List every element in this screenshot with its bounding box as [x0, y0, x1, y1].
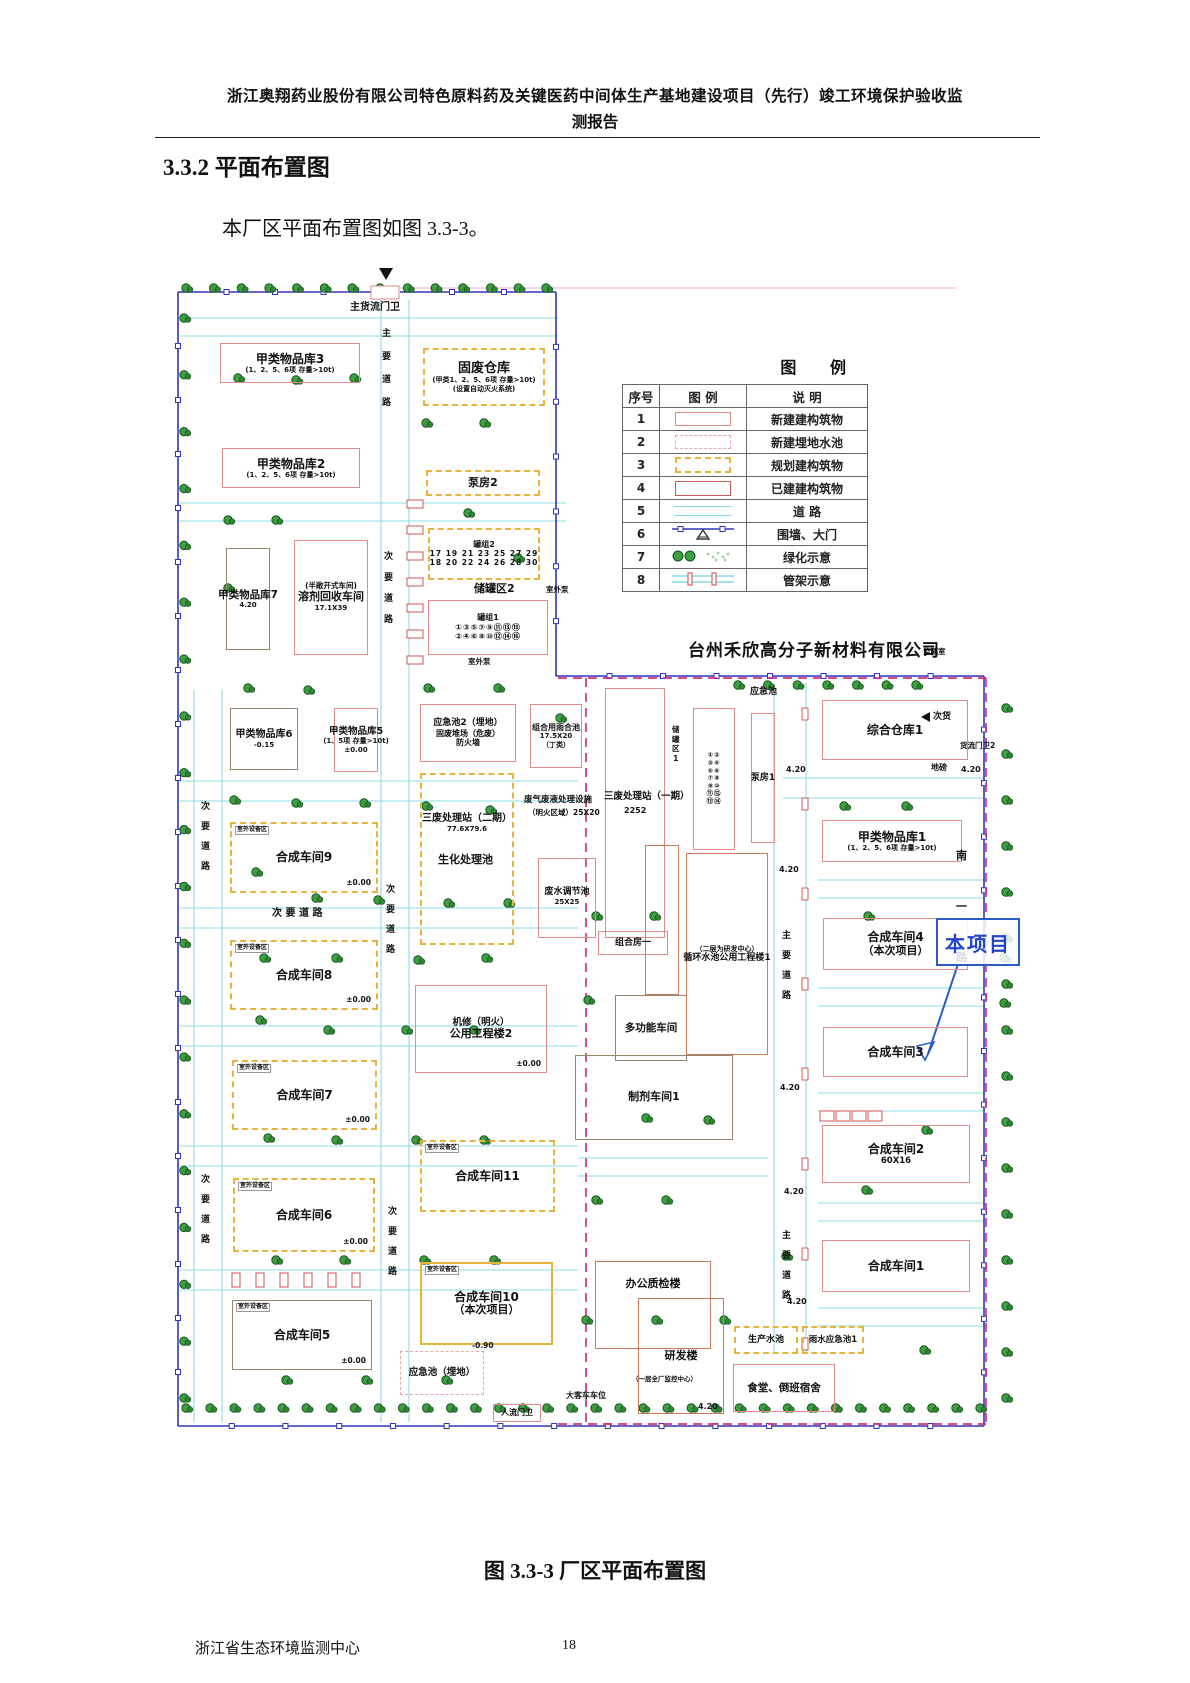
road-label-次要道路: 次 要 道 路	[272, 908, 322, 919]
building-label: 合成车间9	[276, 850, 332, 864]
plan-label-大客车车位: 大客车车位	[566, 1392, 606, 1401]
plan-building-固废仓库: 固废仓库(甲类1、2、5、6项 存量>10t)(设置自动灭火系统)	[423, 348, 545, 406]
tank-number-row: ⑬⑭	[707, 798, 722, 806]
building-sublabel: 17.5X20	[540, 732, 572, 740]
building-label: 人流门卫	[501, 1408, 533, 1417]
legend-row: 6 围墙、大门	[623, 523, 868, 546]
footer-organization: 浙江省生态环境监测中心	[195, 1637, 360, 1658]
road-label-次要道路: 次要道路	[388, 1208, 397, 1277]
tank-number-row: ②④⑥⑧⑩⑫⑭⑯	[455, 632, 521, 641]
tank-number-row: ①③⑤⑦⑨⑪⑬⑮	[455, 623, 521, 632]
plan-building-人流门卫: 人流门卫	[493, 1404, 541, 1422]
building-label: 制剂车间1	[628, 1091, 680, 1104]
road-label-次要道路: 次要道路	[386, 886, 395, 955]
legend-no: 4	[623, 477, 660, 500]
plan-label-4.20: 4.20	[961, 766, 981, 775]
report-header-line1: 浙江奥翔药业股份有限公司特色原料药及关键医药中间体生产基地建设项目（先行）竣工环…	[150, 84, 1040, 106]
plan-building-甲类物品库7: 甲类物品库74.20	[226, 548, 270, 650]
legend-header-row: 序号图 例说 明	[623, 385, 868, 408]
building-label: 甲类物品库7	[218, 589, 278, 601]
plan-label-储罐区1: 储罐区1	[672, 726, 680, 762]
road-icon	[660, 500, 747, 523]
plan-label-（一层全厂监控中心）: （一层全厂监控中心）	[632, 1376, 697, 1383]
legend-title: 图 例	[622, 354, 870, 378]
legend-no: 6	[623, 523, 660, 546]
plan-label-次货: 次货	[933, 713, 951, 723]
building-label: 办公质检楼	[626, 1278, 681, 1291]
plan-building-合成车间11: 室外设备区合成车间11	[420, 1140, 555, 1212]
legend-no: 3	[623, 454, 660, 477]
building-sublabel: （丁类）	[542, 741, 570, 749]
new-buried-pool-icon	[660, 431, 747, 454]
road-label-主要道路: 主要道路	[782, 932, 791, 1001]
building-sublabel: （本次项目）	[863, 945, 929, 958]
building-label: 食堂、倒班宿舍	[747, 1382, 821, 1394]
plan-building-合成车间7: 室外设备区合成车间7±0.00	[232, 1060, 377, 1130]
plan-building-泵房2: 泵房2	[426, 470, 540, 496]
building-label: 应急池2（埋地）	[433, 718, 502, 729]
elevation-label: ±0.00	[341, 1357, 366, 1366]
page-number: 18	[562, 1638, 576, 1654]
building-label: 循环水池公用工程楼1	[683, 953, 770, 964]
legend-no: 5	[623, 500, 660, 523]
building-label: 三废处理站（二期）	[422, 813, 512, 825]
plan-label--0.90: -0.90	[472, 1342, 494, 1350]
plan-building-合成车间2: 合成车间260X16	[822, 1125, 970, 1183]
building-label: 合成车间1	[868, 1259, 924, 1273]
building-label: 甲类物品库6	[236, 729, 293, 741]
building-sublabel: 固废堆场（危废）	[436, 729, 500, 738]
building-label: 合成车间2	[868, 1142, 924, 1156]
building-sublabel: 60X16	[881, 1156, 911, 1166]
plan-label-（明火区域）25X20: （明火区域）25X20	[528, 809, 600, 817]
outdoor-equipment-area-label: 室外设备区	[235, 944, 269, 953]
legend-desc: 管架示意	[747, 569, 868, 592]
building-label: 生产水池	[748, 1335, 784, 1346]
plan-label-室外泵: 室外泵	[546, 586, 569, 594]
plan-label-4.20: 4.20	[698, 1403, 718, 1412]
section-heading: 3.3.2 平面布置图	[163, 148, 330, 182]
legend-desc: 绿化示意	[747, 546, 868, 569]
legend-desc: 规划建构筑物	[747, 454, 868, 477]
site-plan: 图 例 序号图 例说 明 1 新建建构筑物 2 新建埋地水池 3 规划建构筑物 …	[168, 258, 1018, 1443]
building-sublabel: (1、2、5、6项 存量>10t)	[246, 471, 335, 479]
plan-building-甲类物品库2: 甲类物品库2(1、2、5、6项 存量>10t)	[222, 448, 360, 488]
building-label: 合成车间8	[276, 968, 332, 982]
plan-building-循环水池公用工程楼1: （二层为研发中心）循环水池公用工程楼1	[686, 853, 768, 1055]
building-sublabel: 25X25	[555, 898, 580, 906]
legend-desc: 新建埋地水池	[747, 431, 868, 454]
plan-label-监测室: 监测室	[923, 648, 946, 656]
plan-building	[645, 845, 679, 995]
new-building-icon	[660, 408, 747, 431]
building-label: 合成车间4	[867, 930, 923, 944]
plan-building-应急池2（埋地）: 应急池2（埋地）固废堆场（危废）防火墙	[420, 704, 516, 762]
building-label: 废水调节池	[544, 887, 589, 898]
legend-row: 5 道 路	[623, 500, 868, 523]
plan-building-合成车间10: 室外设备区合成车间10（本次项目）	[420, 1262, 553, 1345]
elevation-label: ±0.00	[516, 1060, 541, 1069]
plan-building-雨水应急池1: 雨水应急池1	[802, 1326, 864, 1354]
plan-building-公用工程楼2: 机修（明火）公用工程楼2±0.00	[415, 985, 547, 1073]
building-label: 合成车间3	[867, 1045, 923, 1059]
plan-label-主货流门卫: 主货流门卫	[350, 302, 400, 313]
outdoor-equipment-area-label: 室外设备区	[236, 1303, 270, 1312]
road-label-主要道路: 主要道路	[782, 1232, 791, 1301]
building-sublabel: （二层为研发中心）	[696, 945, 759, 953]
building-sublabel: -0.15	[254, 741, 274, 749]
plan-building-合成车间9: 室外设备区合成车间9±0.00	[230, 822, 378, 893]
building-label: 公用工程楼2	[450, 1028, 513, 1041]
plan-building-应急池（埋地）: 应急池（埋地）	[400, 1351, 484, 1395]
elevation-label: ±0.00	[346, 879, 371, 888]
legend-row: 1 新建建构筑物	[623, 408, 868, 431]
building-sublabel: (甲类1、2、5、6项 存量>10t)	[432, 376, 535, 384]
building-label: 固废仓库	[458, 361, 510, 376]
project-callout: 本项目	[936, 918, 1020, 966]
plan-building-溶剂回收车间: (半敞开式车间)溶剂回收车间17.1X39	[294, 540, 368, 655]
greenery-icon	[670, 548, 736, 564]
legend-desc: 围墙、大门	[747, 523, 868, 546]
building-sublabel: 4.20	[239, 601, 256, 609]
building-label: 泵房2	[468, 477, 498, 490]
building-label: 合成车间11	[455, 1169, 520, 1183]
building-label: 合成车间7	[276, 1088, 332, 1102]
pipe-rack-icon	[660, 569, 747, 592]
building-sublabel: (1、5项 存量>10t)	[323, 737, 389, 745]
building-label: 研发楼	[665, 1350, 698, 1363]
building-label: 应急池（埋地）	[409, 1367, 476, 1378]
building-label: 溶剂回收车间	[298, 591, 364, 604]
legend-table: 序号图 例说 明 1 新建建构筑物 2 新建埋地水池 3 规划建构筑物 4 已建…	[622, 384, 868, 592]
outdoor-equipment-area-label: 室外设备区	[425, 1144, 459, 1153]
road-label-次要道路: 次要道路	[201, 1176, 210, 1245]
figure-caption: 图 3.3-3 厂区平面布置图	[0, 1555, 1190, 1585]
plan-label-4.20: 4.20	[786, 766, 806, 775]
plan-building-制剂车间1: 制剂车间1	[575, 1055, 733, 1140]
plan-label-三废处理站（一期）: 三废处理站（一期）	[604, 792, 690, 802]
plan-label-地磅: 地磅	[931, 764, 947, 773]
outdoor-equipment-area-label: 室外设备区	[235, 826, 269, 835]
building-label: 甲类物品库1	[858, 830, 926, 844]
road-label-次要道路: 次要道路	[201, 803, 210, 872]
plan-building-甲类物品库1: 甲类物品库1(1、2、5、6项 存量>10t)	[822, 820, 962, 862]
building-sublabel: 77.6X79.6	[447, 825, 487, 833]
legend-row: 8 管架示意	[623, 569, 868, 592]
report-header-line2: 测报告	[0, 110, 1190, 132]
building-sublabel: (1、2、5、6项 存量>10t)	[847, 844, 936, 852]
planned-building-icon	[660, 454, 747, 477]
building-label: 甲类物品库5	[329, 726, 383, 737]
building-sublabel: (1、2、5、6项 存量>10t)	[245, 366, 334, 374]
building-label: 合成车间6	[276, 1208, 332, 1222]
legend-desc: 道 路	[747, 500, 868, 523]
header-divider	[155, 137, 1040, 138]
legend: 图 例 序号图 例说 明 1 新建建构筑物 2 新建埋地水池 3 规划建构筑物 …	[622, 354, 870, 592]
legend-no: 8	[623, 569, 660, 592]
plan-building-组合用雨合池: 组合用雨合池17.5X20（丁类）	[530, 704, 582, 768]
plan-building-甲类物品库5: 甲类物品库5(1、5项 存量>10t)±0.00	[334, 708, 378, 772]
legend-header-cell: 说 明	[747, 385, 868, 408]
building-label: 综合仓库1	[867, 723, 923, 737]
elevation-label: ±0.00	[346, 996, 371, 1005]
greenery-icon	[660, 546, 747, 569]
plan-label-生化处理池: 生化处理池	[438, 854, 493, 866]
legend-header-cell: 图 例	[660, 385, 747, 408]
plan-label-应急池: 应急池	[750, 688, 777, 698]
plan-label-4.20: 4.20	[784, 1188, 804, 1197]
pipe-rack-icon	[670, 572, 736, 586]
plan-building-甲类物品库6: 甲类物品库6-0.15	[230, 708, 298, 770]
building-label: 泵房1	[751, 773, 775, 784]
wall-gate-icon	[670, 524, 736, 542]
plan-label-室外泵: 室外泵	[468, 658, 491, 666]
plan-building-合成车间1: 合成车间1	[822, 1240, 970, 1292]
legend-no: 1	[623, 408, 660, 431]
building-label: 雨水应急池1	[809, 1335, 857, 1345]
legend-row: 7 绿化示意	[623, 546, 868, 569]
plan-building-罐组1: 罐组1①③⑤⑦⑨⑪⑬⑮②④⑥⑧⑩⑫⑭⑯	[428, 600, 548, 655]
building-label: 组合房一	[615, 938, 651, 949]
legend-header-cell: 序号	[623, 385, 660, 408]
building-sublabel: ±0.00	[344, 746, 367, 754]
main-gate-icon	[371, 268, 399, 299]
plan-building-研发楼: 研发楼	[638, 1298, 724, 1414]
building-sublabel: 17.1X39	[315, 604, 347, 612]
building-label: 合成车间5	[274, 1328, 330, 1342]
legend-row: 2 新建埋地水池	[623, 431, 868, 454]
plan-building-生产水池: 生产水池	[734, 1326, 798, 1354]
legend-row: 3 规划建构筑物	[623, 454, 868, 477]
plan-building-食堂、倒班宿舍: 食堂、倒班宿舍	[733, 1364, 835, 1412]
legend-desc: 已建建构筑物	[747, 477, 868, 500]
road-label-次要道路: 次要道路	[384, 553, 393, 625]
document-page: 浙江奥翔药业股份有限公司特色原料药及关键医药中间体生产基地建设项目（先行）竣工环…	[0, 0, 1190, 1683]
building-label: 组合用雨合池	[532, 723, 580, 732]
plan-building-综合仓库1: 综合仓库1	[822, 700, 968, 760]
plan-building-合成车间8: 室外设备区合成车间8±0.00	[230, 940, 378, 1010]
plan-building-甲类物品库3: 甲类物品库3(1、2、5、6项 存量>10t)	[220, 343, 360, 383]
plan-building-合成车间6: 室外设备区合成车间6±0.00	[233, 1178, 375, 1252]
legend-no: 2	[623, 431, 660, 454]
plan-label-4.20: 4.20	[779, 866, 799, 875]
legend-no: 7	[623, 546, 660, 569]
elevation-label: ±0.00	[343, 1238, 368, 1247]
outdoor-equipment-area-label: 室外设备区	[238, 1182, 272, 1191]
building-sublabel: （本次项目）	[454, 1304, 520, 1317]
neighbor-company-label: 台州禾欣高分子新材料有限公司	[688, 636, 940, 661]
plan-building-合成车间3: 合成车间3	[823, 1027, 968, 1077]
intro-paragraph: 本厂区平面布置图如图 3.3-3。	[222, 212, 489, 241]
outdoor-equipment-area-label: 室外设备区	[425, 1266, 459, 1275]
outdoor-equipment-area-label: 室外设备区	[237, 1064, 271, 1073]
plan-label-储罐区2: 储罐区2	[474, 583, 515, 595]
plan-building-多功能车间: 多功能车间	[615, 995, 687, 1061]
plan-building-泵房1: 泵房1	[751, 713, 775, 843]
building-label: 合成车间10	[454, 1290, 519, 1304]
existing-building-icon	[660, 477, 747, 500]
building-label: 甲类物品库2	[257, 457, 325, 471]
building-label: 罐组1	[477, 613, 499, 622]
building-label: 多功能车间	[625, 1022, 678, 1034]
plan-building-罐组2: 罐组217 19 21 23 25 27 2918 20 22 24 26 28…	[428, 528, 540, 580]
building-sublabel: (设置自动灭火系统)	[453, 385, 515, 393]
tank-number-row: 18 20 22 24 26 28 30	[430, 559, 539, 568]
plan-building-废水调节池: 废水调节池25X25	[538, 858, 596, 938]
plan-building: ①②③④⑤⑥⑦⑧⑨⑩⑪⑫⑬⑭	[693, 708, 735, 850]
wall-gate-icon	[660, 523, 747, 546]
plan-label-废气废液处理设施: 废气废液处理设施	[524, 796, 592, 805]
legend-row: 4 已建建构筑物	[623, 477, 868, 500]
plan-building-组合房一: 组合房一	[598, 931, 668, 955]
building-sublabel: 防火墙	[456, 738, 480, 747]
plan-label-货流门卫2: 货流门卫2	[960, 742, 995, 750]
plan-label-2252: 2252	[624, 807, 646, 816]
plan-building-合成车间5: 室外设备区合成车间5±0.00	[232, 1300, 372, 1370]
elevation-label: ±0.00	[345, 1116, 370, 1125]
building-label: 甲类物品库3	[256, 352, 324, 366]
road-label-主要道路: 主要道路	[382, 330, 391, 408]
plan-label-4.20: 4.20	[780, 1084, 800, 1093]
legend-desc: 新建建构筑物	[747, 408, 868, 431]
